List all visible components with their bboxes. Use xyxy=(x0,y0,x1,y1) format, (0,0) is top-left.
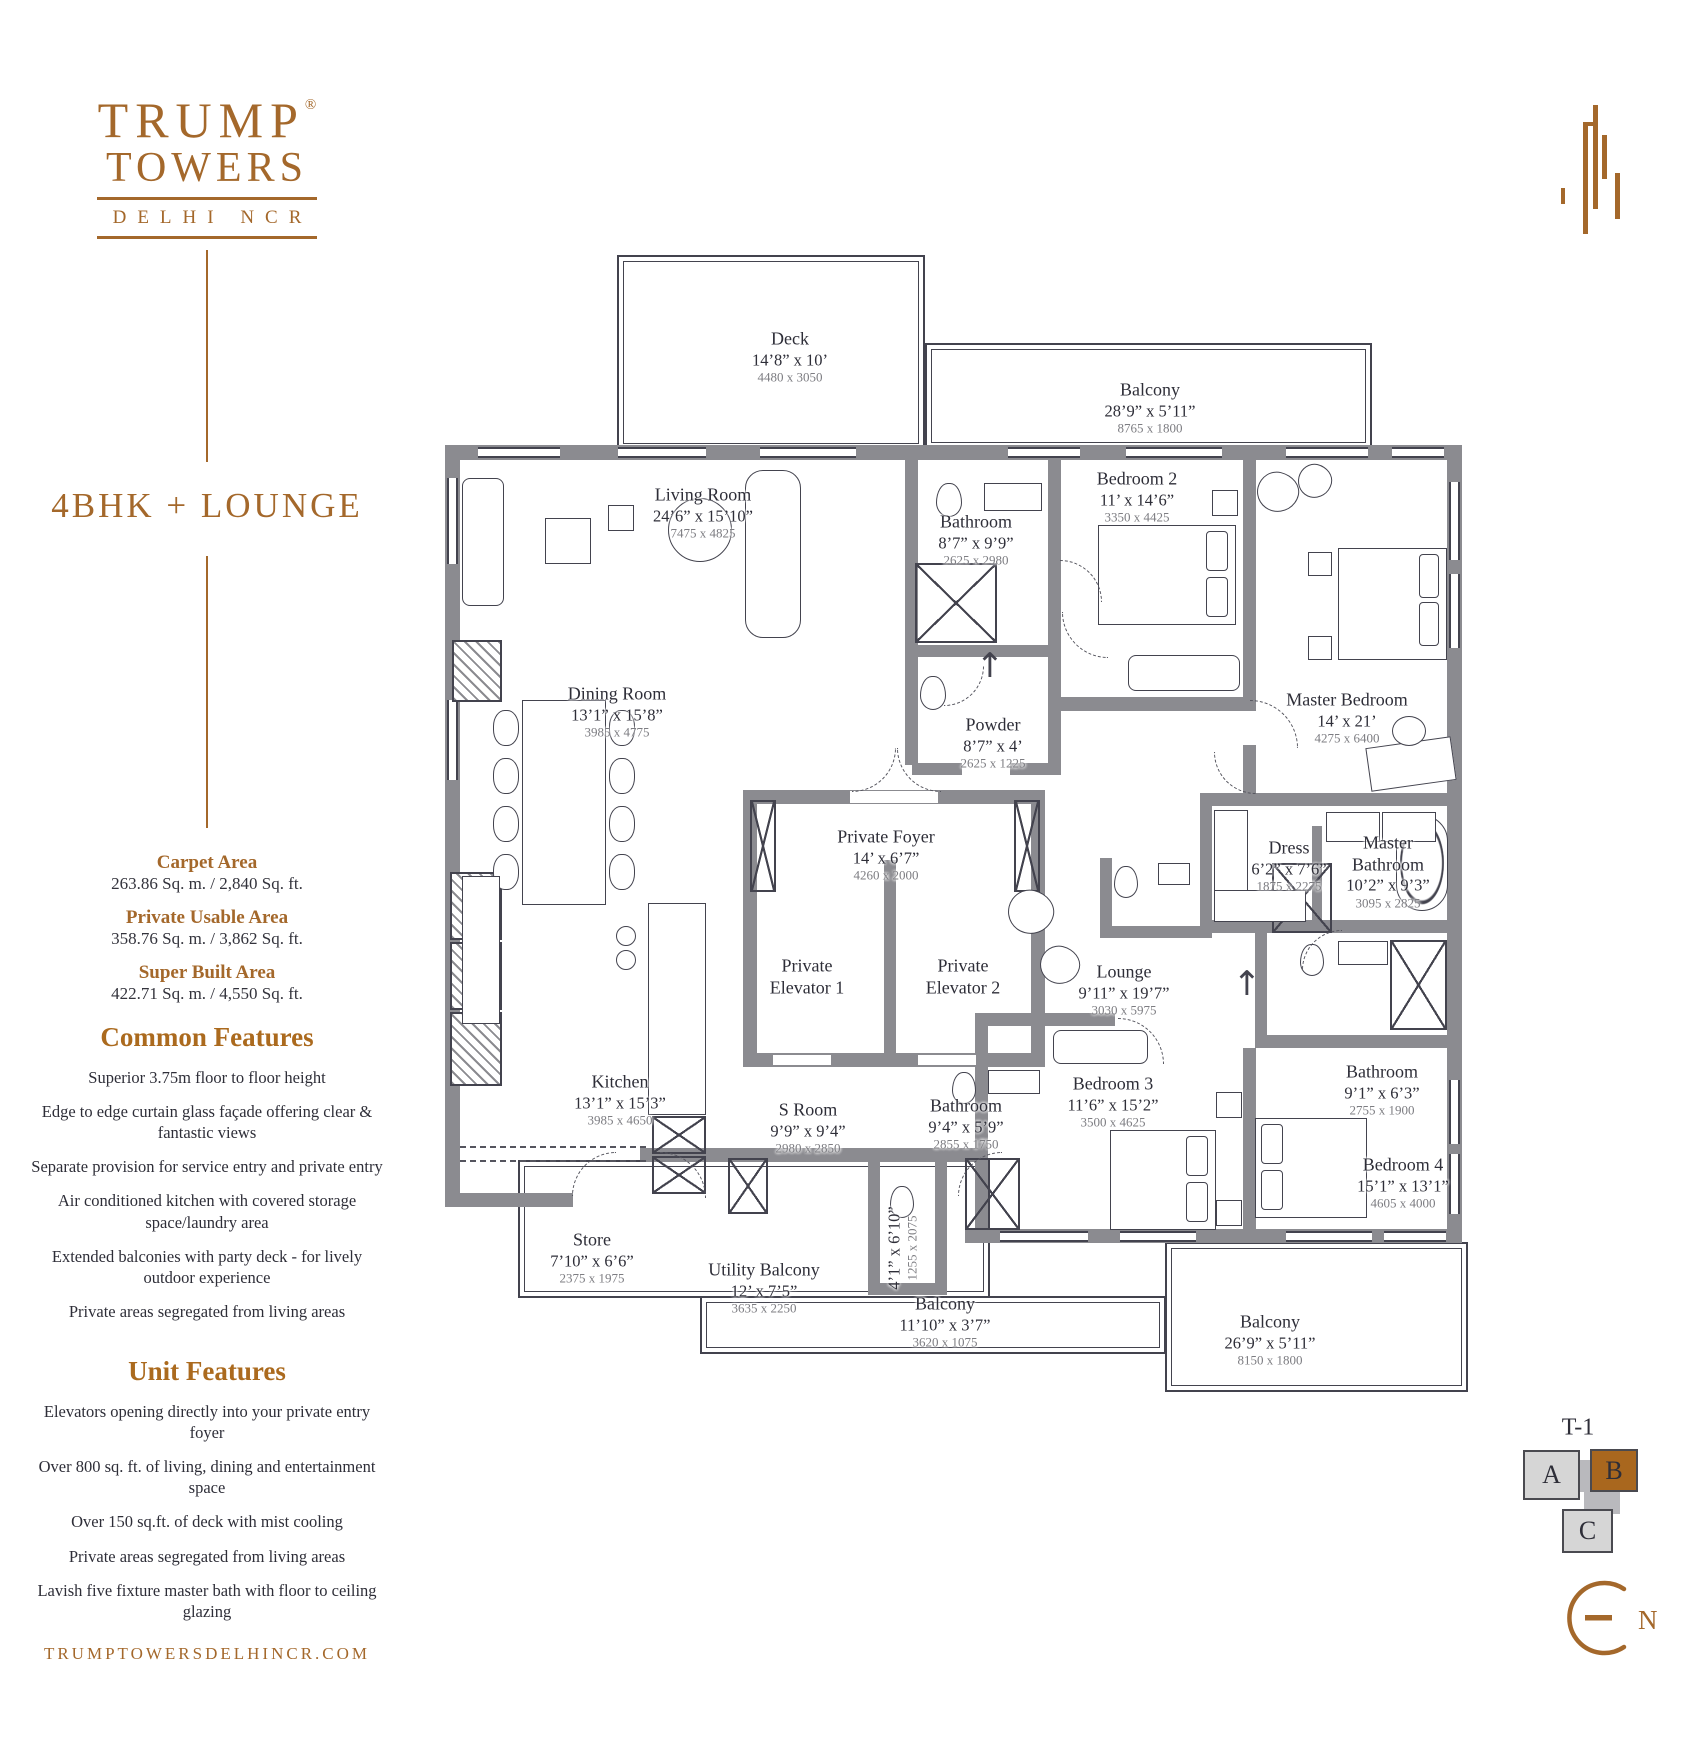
furniture xyxy=(1419,554,1439,598)
service-opening xyxy=(460,1160,646,1162)
furniture xyxy=(1419,602,1439,646)
room-label-private-elevator-2: Private Elevator 2 xyxy=(926,955,1000,998)
window xyxy=(447,700,458,780)
brand-word-towers: TOWERS xyxy=(40,146,374,190)
wall-segment xyxy=(1055,697,1250,711)
window xyxy=(1008,447,1080,458)
wall-segment xyxy=(1100,926,1212,938)
room-name: Store xyxy=(550,1230,633,1252)
furniture xyxy=(1214,890,1306,922)
brand-location: DELHI NCR xyxy=(40,207,374,229)
furniture xyxy=(1158,863,1190,885)
window xyxy=(1126,447,1222,458)
room-size-ft: 13’1” x 15’8” xyxy=(568,705,667,725)
furniture xyxy=(1206,531,1228,571)
furniture xyxy=(493,758,519,794)
window xyxy=(1449,1080,1460,1144)
room-label-dining-room: Dining Room13’1” x 15’8”3985 x 4775 xyxy=(568,684,667,741)
furniture xyxy=(609,854,635,890)
room-label-bathroom: Bathroom8’7” x 9’9”2625 x 2980 xyxy=(938,512,1013,569)
furniture xyxy=(1253,468,1303,517)
room-size-mm: 4605 x 4000 xyxy=(1357,1196,1449,1212)
furniture xyxy=(1261,1124,1283,1164)
room-name: Dress xyxy=(1251,838,1326,860)
room-label-bedroom-4: Bedroom 415’1” x 13’1”4605 x 4000 xyxy=(1357,1155,1449,1212)
window xyxy=(1449,574,1460,648)
room-label-store: Store7’10” x 6’6”2375 x 1975 xyxy=(550,1230,633,1287)
room-size-mm: 3350 x 4425 xyxy=(1097,510,1178,526)
room-label-balcony: Balcony11’10” x 3’7”3620 x 1075 xyxy=(899,1294,990,1351)
door-swing xyxy=(1060,560,1102,602)
room-label-4-1-x-6-10: 4’1” x 6’10”1255 x 2075 xyxy=(884,1206,919,1289)
shaft-symbol xyxy=(750,800,776,892)
room-name: Living Room xyxy=(653,485,753,507)
room-size-mm: 1875 x 2275 xyxy=(1251,879,1326,895)
unit-features-heading: Unit Features xyxy=(28,1356,386,1387)
area-value: 263.86 Sq. m. / 2,840 Sq. ft. xyxy=(40,874,374,894)
window xyxy=(760,447,856,458)
wall-segment xyxy=(1243,447,1256,711)
door-swing xyxy=(1302,930,1342,970)
furniture xyxy=(1186,1182,1208,1222)
room-size-mm: 8765 x 1800 xyxy=(1104,421,1195,437)
room-label-bedroom-3: Bedroom 311’6” x 15’2”3500 x 4625 xyxy=(1067,1074,1158,1131)
unit-block-B: B xyxy=(1590,1449,1638,1492)
common-features-list: Superior 3.75m floor to floor heightEdge… xyxy=(28,1067,386,1322)
window xyxy=(1286,447,1368,458)
area-label: Private Usable Area xyxy=(40,907,374,929)
wall-segment xyxy=(1255,1035,1460,1048)
room-size-ft: 4’1” x 6’10” xyxy=(884,1206,904,1289)
area-label: Carpet Area xyxy=(40,852,374,874)
room-name: Bedroom 3 xyxy=(1067,1074,1158,1096)
room-name: Kitchen xyxy=(574,1072,666,1094)
room-size-ft: 9’9” x 9’4” xyxy=(770,1121,845,1141)
common-features-heading: Common Features xyxy=(28,1022,386,1053)
room-label-balcony: Balcony28’9” x 5’11”8765 x 1800 xyxy=(1104,380,1195,437)
room-size-ft: 13’1” x 15’3” xyxy=(574,1093,666,1113)
room-label-deck: Deck14’8” x 10’4480 x 3050 xyxy=(752,329,828,386)
room-size-mm: 2625 x 2980 xyxy=(938,553,1013,569)
room-label-powder: Powder8’7” x 4’2625 x 1225 xyxy=(961,715,1026,772)
door-swing xyxy=(1118,1018,1164,1064)
shaft-symbol xyxy=(1014,800,1040,892)
room-label-living-room: Living Room24’6” x 15’10”7475 x 4825 xyxy=(653,485,753,542)
room-size-mm: 3030 x 5975 xyxy=(1078,1003,1169,1019)
room-size-ft: 8’7” x 4’ xyxy=(961,736,1026,756)
wall-segment xyxy=(935,1155,947,1295)
feature-item: Over 150 sq.ft. of deck with mist coolin… xyxy=(28,1511,386,1532)
room-label-master-bathroom: Master Bathroom10’2” x 9’3”3095 x 2825 xyxy=(1346,833,1429,912)
feature-item: Over 800 sq. ft. of living, dining and e… xyxy=(28,1456,386,1498)
unit-block-C: C xyxy=(1562,1509,1613,1553)
entry-arrow-icon: ↑ xyxy=(1233,964,1262,1004)
entry-arrow-icon: ↑ xyxy=(976,646,1005,686)
door-swing xyxy=(1062,612,1108,658)
room-name: Utility Balcony xyxy=(708,1260,820,1282)
balcony-outline xyxy=(1165,1242,1468,1392)
room-name: Bathroom xyxy=(938,512,1013,534)
room-size-ft: 11’6” x 15’2” xyxy=(1067,1095,1158,1115)
room-label-bathroom: Bathroom9’4” x 5’9”2855 x 1750 xyxy=(928,1096,1003,1153)
logo-divider xyxy=(97,197,317,200)
furniture xyxy=(1216,1200,1242,1226)
room-size-mm: 3985 x 4650 xyxy=(574,1113,666,1129)
room-size-ft: 7’10” x 6’6” xyxy=(550,1251,633,1271)
window xyxy=(478,447,560,458)
furniture xyxy=(1128,655,1240,691)
room-name: Private Elevator 2 xyxy=(926,955,1000,998)
room-size-mm: 8150 x 1800 xyxy=(1224,1353,1315,1369)
wall-segment xyxy=(1200,793,1460,806)
wall-segment xyxy=(868,1155,880,1295)
room-size-ft: 15’1” x 13’1” xyxy=(1357,1176,1449,1196)
brand-name: TRUMP® xyxy=(40,95,374,146)
service-duct xyxy=(452,640,502,702)
window xyxy=(1449,482,1460,560)
furniture xyxy=(1206,577,1228,617)
feature-item: Lavish five fixture master bath with flo… xyxy=(28,1580,386,1622)
furniture xyxy=(609,758,635,794)
shaft-symbol xyxy=(915,563,997,643)
room-size-mm: 3635 x 2250 xyxy=(708,1301,820,1317)
room-label-balcony: Balcony26’9” x 5’11”8150 x 1800 xyxy=(1224,1312,1315,1369)
door-swing xyxy=(852,748,896,792)
window xyxy=(447,478,458,564)
room-size-ft: 6’2” x 7’6” xyxy=(1251,859,1326,879)
room-name: Bathroom xyxy=(928,1096,1003,1118)
furniture xyxy=(616,926,636,946)
furniture xyxy=(745,470,801,638)
furniture xyxy=(1294,460,1335,501)
room-name: Master Bedroom xyxy=(1286,690,1407,712)
wall-segment xyxy=(1048,447,1061,775)
room-size-mm: 7475 x 4825 xyxy=(653,526,753,542)
room-label-dress: Dress6’2” x 7’6”1875 x 2275 xyxy=(1251,838,1326,895)
brand-word-trump: TRUMP xyxy=(98,92,305,148)
room-size-mm: 2755 x 1900 xyxy=(1344,1103,1419,1119)
room-label-utility-balcony: Utility Balcony12’ x 7’5”3635 x 2250 xyxy=(708,1260,820,1317)
room-label-master-bedroom: Master Bedroom14’ x 21’4275 x 6400 xyxy=(1286,690,1407,747)
furniture xyxy=(1261,1170,1283,1210)
registered-mark-icon: ® xyxy=(305,97,316,113)
room-size-ft: 26’9” x 5’11” xyxy=(1224,1333,1315,1353)
window xyxy=(1000,1231,1088,1242)
room-label-private-foyer: Private Foyer14’ x 6’7”4260 x 2000 xyxy=(837,827,934,884)
door-swing xyxy=(572,1152,616,1196)
window xyxy=(1120,1231,1196,1242)
room-name: Balcony xyxy=(1104,380,1195,402)
room-size-ft: 24’6” x 15’10” xyxy=(653,506,753,526)
page-title: 4BHK + LOUNGE xyxy=(40,486,374,526)
room-size-mm: 4275 x 6400 xyxy=(1286,731,1407,747)
room-label-kitchen: Kitchen13’1” x 15’3”3985 x 4650 xyxy=(574,1072,666,1129)
room-size-ft: 28’9” x 5’11” xyxy=(1104,401,1195,421)
wall-opening xyxy=(773,1055,831,1065)
room-name: Balcony xyxy=(1224,1312,1315,1334)
feature-item: Superior 3.75m floor to floor height xyxy=(28,1067,386,1088)
room-size-ft: 9’11” x 19’7” xyxy=(1078,983,1169,1003)
room-size-ft: 8’7” x 9’9” xyxy=(938,533,1013,553)
area-item: Private Usable Area358.76 Sq. m. / 3,862… xyxy=(40,907,374,949)
wall-segment xyxy=(884,860,896,1067)
room-name: Lounge xyxy=(1078,962,1169,984)
area-value: 422.71 Sq. m. / 4,550 Sq. ft. xyxy=(40,984,374,1004)
room-size-ft: 9’1” x 6’3” xyxy=(1344,1083,1419,1103)
window xyxy=(1384,1231,1446,1242)
furniture xyxy=(462,478,504,606)
room-size-mm: 3500 x 4625 xyxy=(1067,1115,1158,1131)
feature-item: Private areas segregated from living are… xyxy=(28,1301,386,1322)
room-name: Bathroom xyxy=(1344,1062,1419,1084)
room-size-mm: 2625 x 1225 xyxy=(961,756,1026,772)
room-size-mm: 2375 x 1975 xyxy=(550,1271,633,1287)
common-features-section: Common Features Superior 3.75m floor to … xyxy=(28,1022,386,1335)
tower-label: T-1 xyxy=(1562,1415,1594,1442)
wall-opening xyxy=(850,791,938,803)
north-label: N xyxy=(1638,1605,1658,1635)
shaft-symbol xyxy=(1390,940,1447,1030)
room-size-mm: 4260 x 2000 xyxy=(837,868,934,884)
unit-block-A: A xyxy=(1523,1450,1580,1500)
brochure-page: TRUMP® TOWERS DELHI NCR 4BHK + LOUNGE Ca… xyxy=(0,0,1688,1743)
service-opening xyxy=(460,1146,646,1148)
furniture xyxy=(920,676,946,710)
website-link[interactable]: TRUMPTOWERSDELHINCR.COM xyxy=(28,1644,386,1664)
area-value: 358.76 Sq. m. / 3,862 Sq. ft. xyxy=(40,929,374,949)
area-item: Carpet Area263.86 Sq. m. / 2,840 Sq. ft. xyxy=(40,852,374,894)
window xyxy=(1392,447,1444,458)
furniture xyxy=(1114,866,1138,898)
furniture xyxy=(462,876,500,1024)
feature-item: Extended balconies with party deck - for… xyxy=(28,1246,386,1288)
room-name: Bedroom 4 xyxy=(1357,1155,1449,1177)
feature-item: Private areas segregated from living are… xyxy=(28,1546,386,1567)
window xyxy=(1449,1154,1460,1214)
room-label-bedroom-2: Bedroom 211’ x 14’6”3350 x 4425 xyxy=(1097,469,1178,526)
wall-segment xyxy=(1100,858,1112,933)
room-name: Bedroom 2 xyxy=(1097,469,1178,491)
room-name: Deck xyxy=(752,329,828,351)
furniture xyxy=(1003,885,1058,939)
room-size-mm: 3620 x 1075 xyxy=(899,1335,990,1351)
unit-features-list: Elevators opening directly into your pri… xyxy=(28,1401,386,1622)
room-name: Balcony xyxy=(899,1294,990,1316)
feature-item: Edge to edge curtain glass façade offeri… xyxy=(28,1101,386,1143)
unit-features-section: Unit Features Elevators opening directly… xyxy=(28,1356,386,1635)
area-item: Super Built Area422.71 Sq. m. / 4,550 Sq… xyxy=(40,962,374,1004)
room-label-lounge: Lounge9’11” x 19’7”3030 x 5975 xyxy=(1078,962,1169,1019)
feature-item: Separate provision for service entry and… xyxy=(28,1156,386,1177)
room-name: Master Bathroom xyxy=(1346,833,1429,876)
room-name: Dining Room xyxy=(568,684,667,706)
feature-item: Elevators opening directly into your pri… xyxy=(28,1401,386,1443)
room-size-ft: 14’ x 6’7” xyxy=(837,848,934,868)
furniture xyxy=(493,710,519,746)
furniture xyxy=(609,806,635,842)
furniture xyxy=(493,806,519,842)
room-label-s-room: S Room9’9” x 9’4”2980 x 2850 xyxy=(770,1100,845,1157)
room-size-ft: 10’2” x 9’3” xyxy=(1346,876,1429,896)
room-size-ft: 14’8” x 10’ xyxy=(752,350,828,370)
room-name: Powder xyxy=(961,715,1026,737)
area-label: Super Built Area xyxy=(40,962,374,984)
furniture xyxy=(1308,636,1332,660)
furniture xyxy=(1216,1092,1242,1118)
window xyxy=(1286,1231,1372,1242)
area-summary: Carpet Area263.86 Sq. m. / 2,840 Sq. ft.… xyxy=(40,852,374,1017)
feature-item: Air conditioned kitchen with covered sto… xyxy=(28,1190,386,1232)
room-size-ft: 12’ x 7’5” xyxy=(708,1281,820,1301)
furniture xyxy=(1186,1136,1208,1176)
furniture xyxy=(984,483,1042,511)
north-compass-icon: N xyxy=(1538,1576,1668,1662)
furniture xyxy=(545,518,591,564)
furniture xyxy=(988,1070,1040,1094)
room-size-ft: 11’10” x 3’7” xyxy=(899,1315,990,1335)
room-label-bathroom: Bathroom9’1” x 6’3”2755 x 1900 xyxy=(1344,1062,1419,1119)
room-size-ft: 14’ x 21’ xyxy=(1286,711,1407,731)
room-name: Private Elevator 1 xyxy=(770,955,844,998)
brand-logo: TRUMP® TOWERS DELHI NCR xyxy=(40,95,374,239)
accent-line xyxy=(206,556,208,828)
room-size-mm: 3985 x 4775 xyxy=(568,725,667,741)
room-size-mm: 2980 x 2850 xyxy=(770,1141,845,1157)
accent-line xyxy=(206,250,208,462)
furniture xyxy=(1212,490,1238,516)
window xyxy=(618,447,706,458)
furniture xyxy=(608,505,634,531)
room-size-ft: 9’4” x 5’9” xyxy=(928,1117,1003,1137)
furniture xyxy=(616,950,636,970)
wall-segment xyxy=(445,1193,573,1207)
door-swing xyxy=(1214,752,1256,794)
door-swing xyxy=(897,748,941,792)
room-size-mm: 1255 x 2075 xyxy=(904,1206,920,1289)
room-size-mm: 3095 x 2825 xyxy=(1346,896,1429,912)
room-name: S Room xyxy=(770,1100,845,1122)
shaft-symbol xyxy=(728,1158,768,1214)
furniture xyxy=(1338,941,1388,965)
room-name: Private Foyer xyxy=(837,827,934,849)
wall-segment xyxy=(1200,806,1212,928)
room-size-ft: 11’ x 14’6” xyxy=(1097,490,1178,510)
furniture xyxy=(1308,552,1332,576)
logo-divider xyxy=(97,236,317,239)
room-size-mm: 4480 x 3050 xyxy=(752,370,828,386)
room-label-private-elevator-1: Private Elevator 1 xyxy=(770,955,844,998)
wall-opening xyxy=(918,1055,976,1065)
room-size-mm: 2855 x 1750 xyxy=(928,1137,1003,1153)
